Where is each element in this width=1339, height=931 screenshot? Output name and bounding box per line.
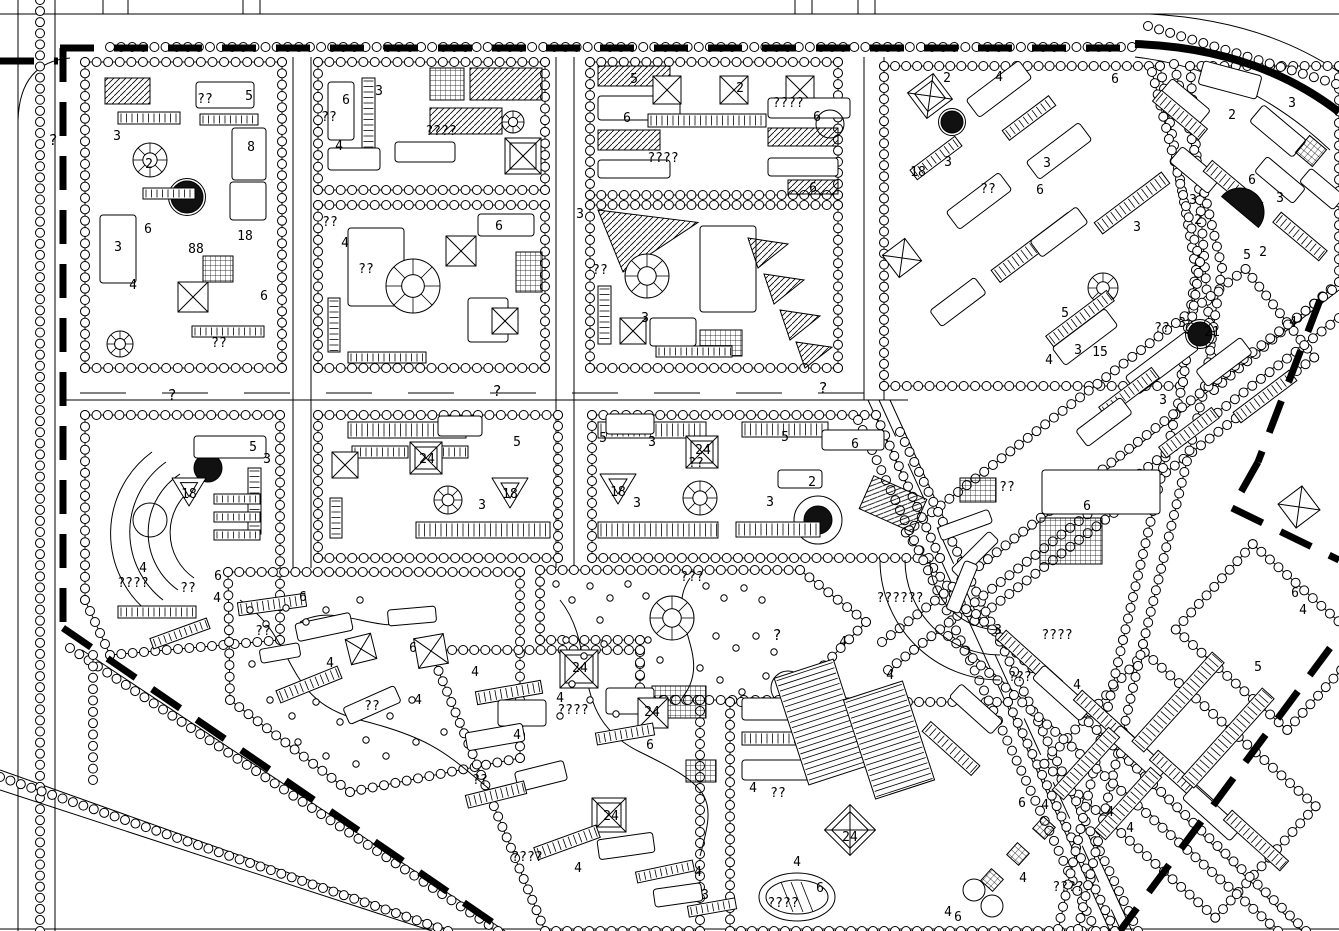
plot-label: 4	[995, 70, 1003, 85]
plot-label: 4	[839, 635, 847, 650]
plot-label: 3	[1074, 343, 1082, 358]
plot-label: 4	[213, 591, 221, 606]
plot-label: 5	[245, 89, 253, 104]
plot-label: 3	[1276, 191, 1284, 206]
plot-label: ??	[211, 336, 227, 351]
plot-label: 6	[1248, 173, 1256, 188]
plot-label: 6	[1018, 796, 1026, 811]
plot-label: 3	[375, 84, 383, 99]
plot-label: 3	[633, 496, 641, 511]
plot-label: 6	[1036, 183, 1044, 198]
plot-label: 2	[1194, 213, 1202, 228]
plot-label: ??	[1154, 321, 1170, 336]
plot-label: 3	[1133, 220, 1141, 235]
plot-label: 3	[944, 155, 952, 170]
plot-label: 18	[910, 165, 926, 180]
plot-label: 3	[263, 452, 271, 467]
plot-label: 3	[648, 435, 656, 450]
plot-label: 4	[749, 781, 757, 796]
plot-label: 15	[1092, 345, 1108, 360]
plot-label: ??	[197, 92, 213, 107]
plot-label: 6	[813, 110, 821, 125]
plot-label: 3	[1043, 156, 1051, 171]
plot-label: 6	[646, 738, 654, 753]
plot-label: 5	[599, 431, 607, 446]
plot-label: ??	[592, 263, 608, 278]
plot-label: 4	[1106, 805, 1114, 820]
plot-label: 6	[495, 219, 503, 234]
plot-label: 4	[414, 693, 422, 708]
plot-label: 3	[994, 623, 1002, 638]
plot-label: 6	[809, 181, 817, 196]
plot-label: 6	[851, 437, 859, 452]
plot-label: ????	[117, 576, 148, 591]
plot-label: 4	[1289, 315, 1297, 330]
plot-label: 18	[502, 487, 518, 502]
plot-label: 6	[299, 590, 307, 605]
plot-label: ??	[180, 581, 196, 596]
plot-label: 5	[249, 440, 257, 455]
plot-label: 3	[1159, 393, 1167, 408]
plot-label: 4	[886, 668, 894, 683]
plot-label: 6	[1291, 586, 1299, 601]
plot-label: ??	[322, 215, 338, 230]
plot-label: 3	[641, 311, 649, 326]
plot-label: 3	[1288, 96, 1296, 111]
plot-label: 3	[1189, 193, 1197, 208]
plot-label: ??	[688, 456, 704, 471]
plot-label: 6	[623, 111, 631, 126]
plot-label: ??	[358, 262, 374, 277]
plot-label: 4	[129, 278, 137, 293]
plot-label: 8	[247, 140, 255, 155]
plot-label: 4	[694, 865, 702, 880]
plot-label: ??	[999, 480, 1015, 495]
plot-label: 3	[1178, 316, 1186, 331]
plot-label: ???	[680, 570, 703, 585]
plot-label: 6	[260, 289, 268, 304]
plot-label: 3	[114, 240, 122, 255]
plot-label: 5	[1243, 248, 1251, 263]
plot-label: ????	[767, 896, 798, 911]
plot-label: 3	[576, 207, 584, 222]
plot-label: 4	[793, 855, 801, 870]
plot-label: 21	[1204, 325, 1220, 340]
plot-label: 3	[113, 129, 121, 144]
plot-label: 2	[808, 475, 816, 490]
plot-label: 18	[610, 485, 626, 500]
plot-label: 4	[1299, 603, 1307, 618]
plot-label: 3	[766, 495, 774, 510]
plot-label: ??	[980, 182, 996, 197]
plot-label: 4	[1073, 678, 1081, 693]
plot-label: 4	[1041, 798, 1049, 813]
plot-label: ????	[557, 703, 588, 718]
plot-label: 3	[478, 498, 486, 513]
plot-label: 2	[736, 81, 744, 96]
plot-label: 4	[1019, 871, 1027, 886]
plot-label: ????	[1041, 628, 1072, 643]
plot-label: ??????	[877, 591, 924, 606]
plot-label: 4	[139, 561, 147, 576]
plot-label: ????	[511, 850, 542, 865]
plot-label: 4	[1045, 353, 1053, 368]
plot-label: 2	[943, 71, 951, 86]
plot-label: 6	[409, 641, 417, 656]
plot-label: ?	[818, 379, 827, 397]
plot-label: 6	[214, 569, 222, 584]
plot-label: 4	[335, 139, 343, 154]
plot-label: 4	[944, 905, 952, 920]
plot-label: ??	[770, 786, 786, 801]
plot-label: 2	[1228, 108, 1236, 123]
plot-label: 5	[630, 72, 638, 87]
plot-label: ??	[472, 773, 488, 788]
plot-label: 6	[144, 222, 152, 237]
plot-label: 24	[419, 452, 435, 467]
plot-label: 24	[842, 830, 858, 845]
plot-label: 4	[1126, 821, 1134, 836]
site-plan-canvas: ?????5??32863881846??36??4??????4??6562?…	[0, 0, 1339, 931]
plot-label: 4	[471, 665, 479, 680]
plot-label: ????	[1052, 880, 1083, 895]
plot-label: 6	[1111, 72, 1119, 87]
plot-label: 18	[181, 487, 197, 502]
plot-label: 4	[326, 656, 334, 671]
plot-label: 6	[954, 910, 962, 925]
plot-label: ?	[167, 386, 176, 404]
plot-label: 2	[145, 157, 153, 172]
plot-label: ????	[425, 124, 456, 139]
plot-label: 5	[1061, 306, 1069, 321]
plot-label: ?	[772, 626, 781, 644]
plot-label: 2	[1259, 245, 1267, 260]
plot-label: 3	[701, 888, 709, 903]
plot-label: 24	[644, 705, 660, 720]
plot-label: ????	[647, 151, 678, 166]
plot-label: ???	[1008, 670, 1031, 685]
cad-site-plan-viewport: ?????5??32863881846??36??4??????4??6562?…	[0, 0, 1339, 931]
plot-label: ??	[321, 110, 337, 125]
plot-label: 88	[188, 242, 204, 257]
plot-label: ?	[492, 382, 501, 400]
plot-label: 24	[572, 661, 588, 676]
plot-label: 4	[574, 861, 582, 876]
plot-label: ??	[255, 624, 271, 639]
plot-label: 6	[342, 93, 350, 108]
plot-label: 6	[816, 881, 824, 896]
plot-label: 24	[603, 809, 619, 824]
plot-label: 18	[237, 229, 253, 244]
plot-label: ??	[364, 699, 380, 714]
plot-label: 4	[341, 236, 349, 251]
plot-label: 5	[1254, 660, 1262, 675]
plot-label: 5	[781, 430, 789, 445]
plot-label: 5	[513, 435, 521, 450]
plot-label: 6	[1083, 499, 1091, 514]
plot-label: 4	[513, 728, 521, 743]
plot-label: ????	[772, 96, 803, 111]
plot-label: ?	[48, 131, 57, 149]
